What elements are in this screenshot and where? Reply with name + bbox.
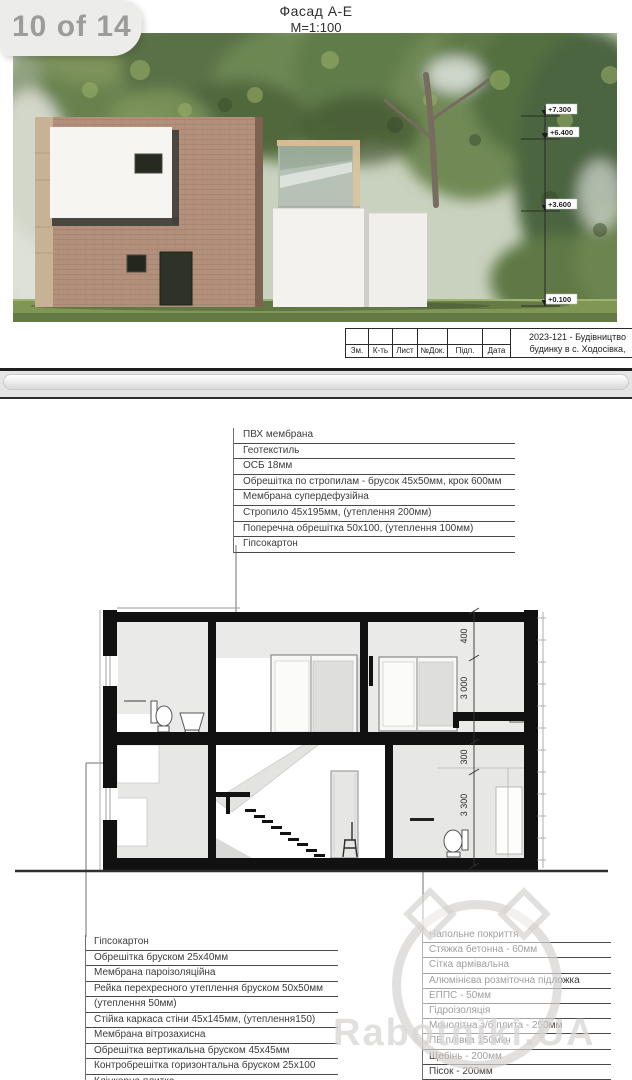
toilet2-bowl	[444, 830, 462, 852]
layer-row: Напольне покриття	[423, 928, 611, 943]
page-separator	[0, 371, 632, 397]
layer-row: Обрешітка бруском 25х40мм	[86, 951, 338, 967]
pdf-viewer: Фасад А-Е М=1:100	[0, 0, 632, 1080]
layer-row: Поперечна обрешітка 50х100, (утеплення 1…	[234, 522, 515, 538]
layer-row: ПВХ мембрана	[234, 428, 515, 444]
layer-row: Клінкерна плитка	[86, 1075, 338, 1080]
layer-row: Контробрешітка горизонтальна бруском 25х…	[86, 1059, 338, 1075]
layer-row: Гідроізоляція	[423, 1004, 611, 1019]
shelf-lower	[410, 818, 434, 821]
layer-row: Гіпсокартон	[234, 537, 515, 553]
title-block-cell	[346, 329, 369, 345]
page-indicator-badge: 10 of 14	[0, 0, 142, 56]
project-name: 2023-121 - Будівництво будинку в с. Ходо…	[511, 329, 632, 358]
toilet2-tank	[462, 830, 468, 850]
roof-layer-list: ПВХ мембрана Геотекстиль ОСБ 18мм Обреші…	[233, 428, 515, 553]
title-block-col-pidp: Підп.	[448, 345, 483, 358]
title-block-cell	[418, 329, 448, 345]
title-block-col-kt: К-ть	[369, 345, 393, 358]
facade-rendering: +7.300 +6.400 +3.600 +0.100	[13, 33, 617, 322]
layer-row: Стяжка бетонна - 60мм	[423, 943, 611, 958]
elevation-label: +6.400	[550, 128, 573, 137]
layer-row: Обрешітка вертикальна бруском 45х45мм	[86, 1044, 338, 1060]
dimension-label: 3 300	[459, 794, 469, 817]
layer-row: Рейка перехресного утеплення бруском 50х…	[86, 982, 338, 998]
layer-row: Стропило 45х195мм, (утеплення 200мм)	[234, 506, 515, 522]
page-1-facade-sheet: Фасад А-Е М=1:100	[0, 0, 632, 371]
page-separator-bar	[3, 374, 629, 390]
dimension-label: 400	[459, 628, 469, 643]
elevation-label: +3.600	[548, 200, 571, 209]
title-block-cell	[448, 329, 483, 345]
white-volume-left	[273, 208, 366, 307]
title-block-col-zm: Зм.	[346, 345, 369, 358]
layer-row: Сітка армівальна	[423, 958, 611, 973]
layer-row: Мембрана вітрозахисна	[86, 1028, 338, 1044]
project-line2: будинку в с. Ходосівка,	[511, 343, 632, 355]
layer-row: Щебінь - 200мм	[423, 1050, 611, 1065]
layer-row: Монолітна з/б плита - 250мм	[423, 1019, 611, 1034]
layer-row: Обрешітка по стропилам - брусок 45х50мм,…	[234, 475, 515, 491]
toilet-bowl	[156, 706, 172, 726]
layer-row: Стійка каркаса стіни 45х145мм, (утепленн…	[86, 1013, 338, 1029]
layer-row: Мембрана супердефузійна	[234, 490, 515, 506]
dimension-label: 3 000	[459, 677, 469, 700]
layer-row: ЕППС - 50мм	[423, 989, 611, 1004]
layer-row: Алюмінієва розміточна підложка	[423, 974, 611, 989]
upper-window	[135, 154, 162, 173]
project-line1: 2023-121 - Будівництво	[511, 331, 632, 343]
elevation-label: +7.300	[548, 105, 571, 114]
title-block-col-ndok: №Док.	[418, 345, 448, 358]
title-block-cell	[369, 329, 393, 345]
wall-layer-list: Гіпсокартон Обрешітка бруском 25х40мм Ме…	[85, 935, 338, 1080]
layer-row: Геотекстиль	[234, 444, 515, 460]
title-block-col-data: Дата	[483, 345, 511, 358]
title-block-col-list: Лист	[393, 345, 418, 358]
title-block-cell	[393, 329, 418, 345]
curtain-mark	[369, 656, 373, 686]
layer-row: ПЕ плівка 150мкн	[423, 1034, 611, 1049]
layer-row: Мембрана пароізоляційна	[86, 966, 338, 982]
glass-guardrail	[277, 140, 360, 207]
layer-row: Гіпсокартон	[86, 935, 338, 951]
entry-door	[160, 252, 192, 305]
layer-row: ОСБ 18мм	[234, 459, 515, 475]
layer-row: Пісок - 200мм	[423, 1065, 611, 1080]
small-window	[127, 255, 146, 272]
dimension-label: 300	[459, 749, 469, 764]
title-block: 2023-121 - Будівництво будинку в с. Ходо…	[345, 328, 632, 358]
elevation-label: +0.100	[548, 295, 571, 304]
white-volume-right	[369, 213, 427, 307]
staircase	[212, 742, 325, 858]
layer-row: (утеплення 50мм)	[86, 997, 338, 1013]
floor-layer-list: Напольне покриття Стяжка бетонна - 60мм …	[422, 928, 611, 1080]
title-block-cell	[483, 329, 511, 345]
